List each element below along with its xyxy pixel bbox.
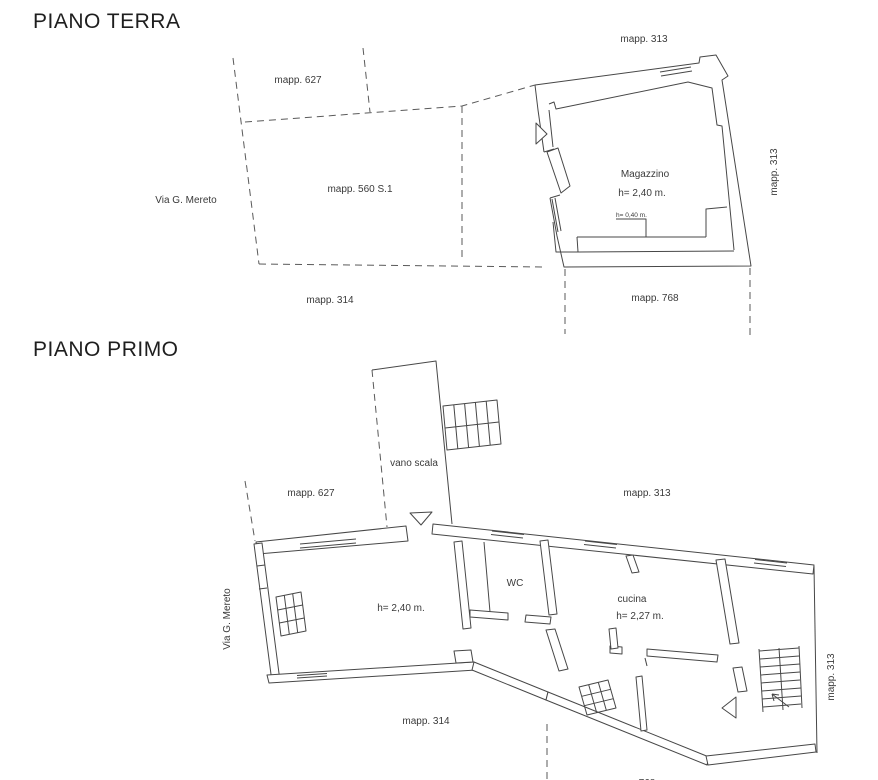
bottom-wall-slope-2 bbox=[546, 692, 709, 765]
label-cucina: cucina bbox=[618, 594, 647, 605]
rightroom-door-arrow-icon bbox=[722, 697, 736, 718]
wc-south-wall-right bbox=[525, 615, 551, 624]
wall-wc-cucina-lower bbox=[546, 629, 568, 671]
left-winder-stair-outline bbox=[276, 592, 306, 636]
floor-plan-drawing: PIANO TERRA mapp. 313 mapp. 627 Via G. M… bbox=[0, 0, 878, 780]
cucina-south-wall-stub bbox=[609, 628, 618, 649]
door-leaf bbox=[547, 148, 570, 193]
label-mapp-627: mapp. 627 bbox=[274, 75, 322, 86]
label-mapp-313-right-p2: mapp. 313 bbox=[826, 653, 837, 701]
parapet-label-leader bbox=[616, 219, 646, 237]
stairwell-left-edge bbox=[372, 370, 387, 527]
parapet-end-cap bbox=[577, 237, 578, 252]
left-wall bbox=[254, 543, 280, 682]
parcel-line-left bbox=[233, 58, 259, 264]
bottom-wall-slope-1 bbox=[472, 662, 548, 700]
cucina-south-wall-right bbox=[647, 649, 718, 662]
label-via-mereto-p2: Via G. Mereto bbox=[222, 588, 233, 650]
parcel-line-bottom bbox=[259, 264, 546, 267]
label-mapp-314: mapp. 314 bbox=[306, 295, 354, 306]
right-boundary-wall bbox=[814, 566, 817, 753]
label-mapp-768: mapp. 768 bbox=[631, 293, 679, 304]
label-mapp-313-top: mapp. 313 bbox=[620, 34, 668, 45]
cadastral-plan-sheet: PIANO TERRA mapp. 313 mapp. 627 Via G. M… bbox=[0, 0, 878, 780]
label-mapp-627-p2: mapp. 627 bbox=[287, 488, 335, 499]
bottom-wall-right bbox=[706, 744, 816, 765]
wall-cucina-rightroom-lower bbox=[733, 667, 747, 692]
right-stair-direction-arrow bbox=[772, 694, 789, 707]
label-mapp-314-p2: mapp. 314 bbox=[402, 716, 450, 727]
cucina-wall-stub bbox=[626, 555, 639, 573]
top-wall-window bbox=[660, 67, 692, 76]
label-via-mereto: Via G. Mereto bbox=[155, 195, 217, 206]
piano-primo-plan: PIANO PRIMO bbox=[33, 338, 837, 780]
label-main-room-height: h= 2,40 m. bbox=[377, 603, 425, 614]
piano-primo-title: PIANO PRIMO bbox=[33, 338, 179, 361]
piano-terra-plan: PIANO TERRA mapp. 313 mapp. 627 Via G. M… bbox=[33, 10, 780, 336]
wall-cucina-rightroom-upper bbox=[716, 559, 739, 644]
label-mapp-313-top-p2: mapp. 313 bbox=[623, 488, 671, 499]
stairwell-outline bbox=[372, 361, 452, 524]
label-mapp-313-right: mapp. 313 bbox=[769, 148, 780, 196]
parcel-line-top-stub bbox=[363, 48, 370, 112]
door-jamb-bottom bbox=[550, 195, 560, 198]
cucina-door-tick bbox=[645, 658, 647, 666]
wc-left-face-line bbox=[484, 542, 490, 612]
bottom-wall-pilaster bbox=[454, 650, 473, 663]
top-wall-main bbox=[432, 524, 814, 574]
wall-mainroom-wc bbox=[454, 541, 471, 629]
right-wall-notch bbox=[706, 207, 727, 237]
wc-south-wall-left bbox=[470, 610, 508, 620]
label-cucina-height: h= 2,27 m. bbox=[616, 611, 664, 622]
label-mapp-560: mapp. 560 S.1 bbox=[327, 184, 392, 195]
label-magazzino-height: h= 2,40 m. bbox=[618, 188, 666, 199]
bottom-wall-left bbox=[267, 662, 476, 683]
parapet-bottom-line bbox=[578, 251, 734, 252]
label-wc: WC bbox=[507, 578, 524, 589]
piano-terra-title: PIANO TERRA bbox=[33, 10, 180, 33]
label-vano-scala: vano scala bbox=[390, 458, 438, 469]
wall-wc-cucina-upper bbox=[540, 540, 557, 615]
corridor-wall bbox=[636, 676, 647, 731]
stairwell-door-arrow-icon bbox=[410, 512, 432, 525]
stairwell-stairs-steps bbox=[445, 401, 499, 449]
left-winder-stair-steps bbox=[278, 594, 305, 635]
parcel-line-top bbox=[245, 85, 535, 122]
label-magazzino: Magazzino bbox=[621, 169, 670, 180]
label-parapet-height: h= 0,40 m. bbox=[616, 212, 647, 219]
top-wall-left-wing bbox=[256, 526, 408, 554]
entrance-arrow-icon bbox=[536, 123, 547, 144]
magazzino-outer-wall bbox=[535, 55, 751, 267]
parcel-line-upper-left bbox=[245, 481, 255, 541]
inner-left-wall-line bbox=[549, 110, 553, 147]
